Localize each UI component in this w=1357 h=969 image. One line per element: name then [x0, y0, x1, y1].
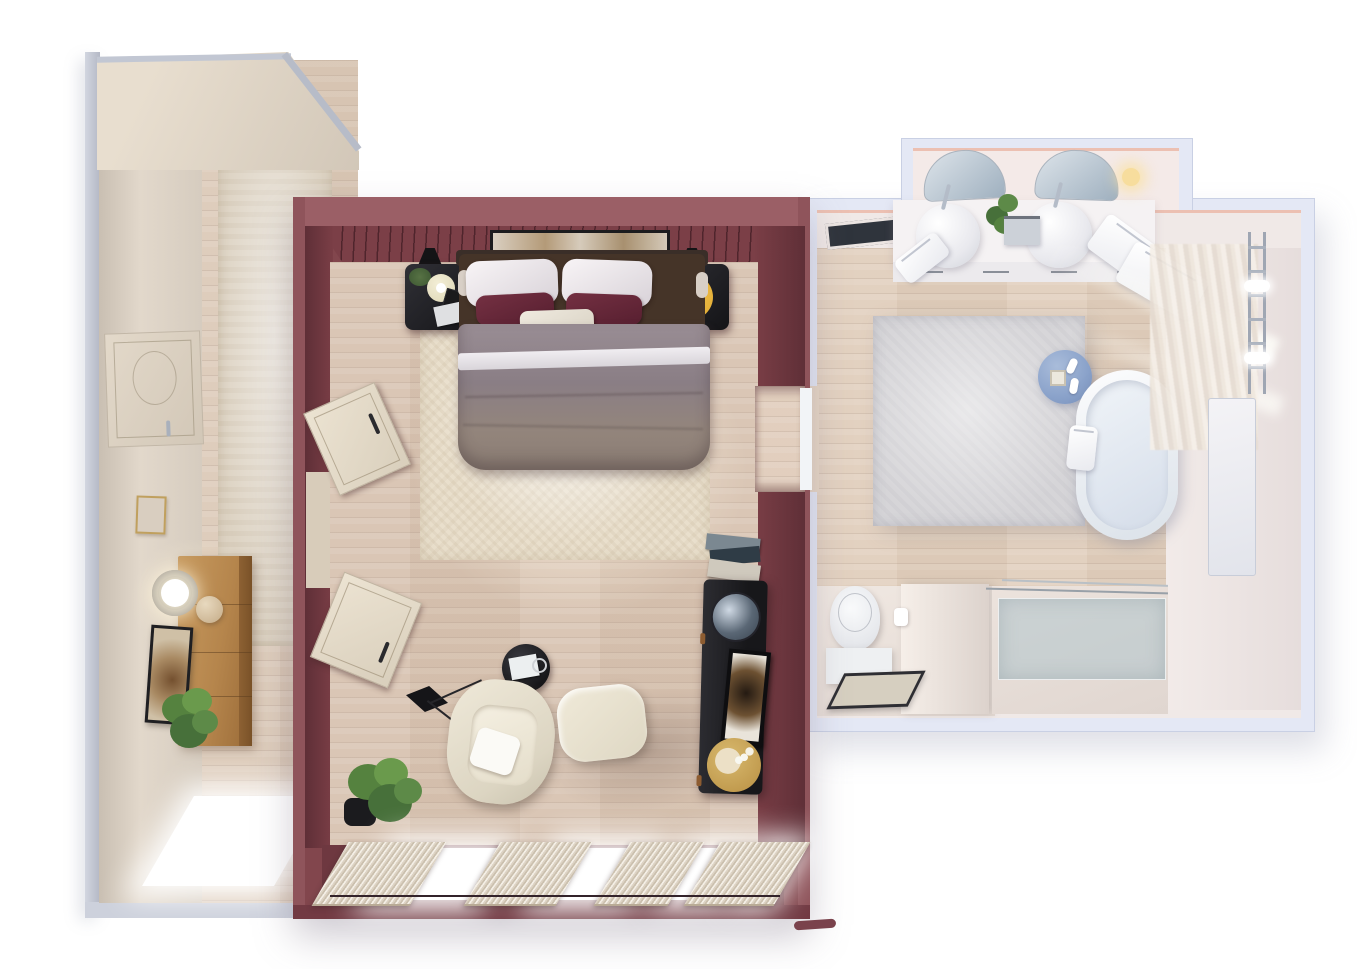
armchair-cushion	[466, 703, 540, 787]
duvet-crease	[465, 392, 703, 398]
book	[707, 558, 761, 583]
console-handle	[696, 775, 701, 786]
floor-lamp-leg	[427, 700, 477, 739]
round-mirror	[712, 593, 759, 640]
hallway-small-wall-frame	[135, 495, 166, 534]
hallway	[0, 0, 420, 969]
doorway-passage-strip	[805, 386, 819, 492]
stool-bottle	[1065, 357, 1079, 375]
console-art-print	[725, 653, 767, 742]
ladder-rung	[1248, 318, 1266, 321]
tray-flowers	[731, 742, 758, 773]
curtain-panel	[684, 842, 811, 906]
tray-cup	[436, 283, 446, 293]
ladder-rung	[1248, 366, 1266, 369]
ladder-rail	[1248, 232, 1251, 394]
ladder-rung	[1248, 342, 1266, 345]
hallway-bottom-outer-wall	[85, 902, 347, 918]
duvet-crease	[463, 424, 703, 430]
tub-towel	[1066, 425, 1098, 472]
hallway-plant	[158, 688, 224, 764]
toilet-paper-roll	[894, 608, 908, 626]
tray-ball	[675, 296, 686, 307]
curtain-panel	[594, 842, 705, 906]
bedroom-light-pool	[410, 320, 750, 620]
burgundy-pillow-right	[565, 293, 642, 326]
table-cup-handle	[532, 658, 547, 673]
nightstand-right	[653, 264, 729, 330]
hallway-left-outer-wall	[85, 52, 100, 912]
door-handle	[166, 420, 171, 436]
armchair	[442, 675, 560, 809]
headboard	[456, 250, 708, 266]
wall-panel-mirror	[1208, 398, 1256, 576]
console-handle	[700, 633, 705, 644]
book-stack	[706, 534, 764, 586]
console-cabinet	[698, 579, 768, 795]
plant-foliage	[998, 194, 1018, 212]
window-pane	[661, 848, 743, 900]
bathroom	[780, 120, 1357, 800]
hallway-entry-door	[104, 330, 204, 447]
gold-round-tray	[667, 274, 713, 320]
stool-bottle	[1069, 377, 1080, 394]
round-side-table	[502, 644, 550, 692]
wall-sconce	[1122, 168, 1140, 186]
white-pillow-right	[561, 258, 653, 307]
tray-candle	[685, 280, 701, 296]
armchair-shell	[442, 675, 560, 809]
tray-inner	[715, 748, 742, 775]
ladder-towel	[1244, 352, 1270, 364]
bedroom-wall-art	[490, 230, 670, 254]
shower-glass	[998, 598, 1166, 680]
nightstand-papers	[433, 301, 467, 327]
sideboard-side-face	[239, 556, 252, 746]
window-pane	[737, 848, 797, 900]
book	[709, 546, 760, 566]
console-gold-tray	[706, 737, 761, 792]
table-books	[508, 654, 539, 681]
mattress-top	[459, 254, 705, 338]
partition-wall	[901, 584, 989, 714]
floor-lamp-leg	[430, 679, 482, 703]
stool-dish	[1050, 370, 1066, 386]
duvet-sheet-fold	[458, 347, 710, 371]
floorplan-render	[0, 0, 1357, 969]
bed	[455, 248, 713, 474]
bathroom-pink-trim-left	[817, 210, 905, 213]
bolster-right	[696, 272, 708, 298]
wall-lamp-right	[679, 248, 705, 268]
bolster-left	[458, 270, 470, 296]
wall-lamp-left	[417, 248, 443, 268]
bedroom-area-rug	[420, 296, 710, 560]
ladder-towel	[1244, 280, 1270, 292]
book	[705, 533, 760, 555]
render-artifact-blob	[794, 919, 837, 931]
ladder-rung	[1248, 294, 1266, 297]
hallway-table-lamp	[152, 570, 198, 616]
ottoman	[554, 682, 649, 765]
vanity-tray-box	[1004, 216, 1040, 245]
towel-ladder	[1248, 232, 1266, 394]
armchair-throw	[468, 726, 522, 778]
white-pillow-left	[465, 258, 559, 307]
toilet-seat-line	[838, 593, 872, 632]
sitting-area-shadow	[531, 672, 768, 828]
ladder-rung	[1248, 246, 1266, 249]
window-pane	[533, 848, 655, 900]
gray-duvet	[458, 324, 710, 470]
drawer-handle	[983, 271, 1009, 273]
burgundy-pillow-left	[475, 292, 554, 326]
bathroom-area-rug	[873, 316, 1085, 526]
wall-hung-toilet	[830, 586, 880, 650]
plant-foliage	[192, 710, 218, 734]
lamp-bulb	[161, 579, 189, 607]
nightstand-tray	[427, 274, 455, 302]
curtain-panel	[464, 842, 593, 906]
console-artwork	[720, 649, 771, 747]
hallway-beige-wall	[99, 60, 202, 903]
wall-art-print	[493, 233, 667, 251]
hallway-decor-sphere	[196, 596, 223, 623]
ladder-rail	[1263, 232, 1266, 394]
lumbar-pillow	[520, 309, 595, 340]
nightstand-book	[440, 288, 480, 322]
ladder-rung	[1248, 270, 1266, 273]
